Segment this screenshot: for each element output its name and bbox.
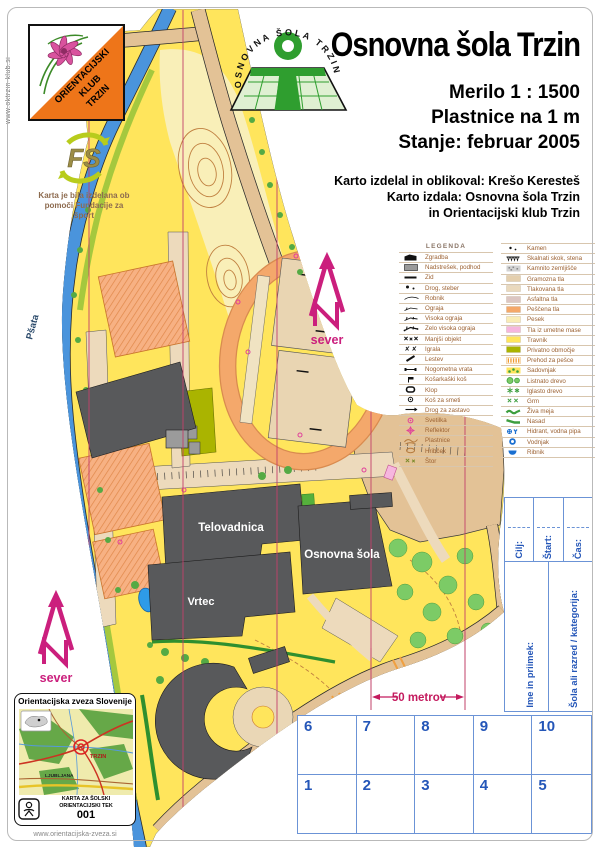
shed-2 xyxy=(189,442,200,454)
club-website: www.oktrzin-klub.si xyxy=(5,24,12,124)
legend-label: Pesek xyxy=(527,315,544,324)
punch-cell: 8 xyxy=(415,716,474,775)
issuer-minimap: TRZIN LJUBLJANA xyxy=(19,709,133,795)
map-meta: Merilo 1 : 1500 Plastnice na 1 m Stanje:… xyxy=(398,80,580,155)
legend-label: Kamnito zemljišče xyxy=(527,264,577,273)
legend-label: Prehod za pešce xyxy=(527,356,573,365)
punch-cell: 5 xyxy=(532,775,591,834)
punch-cell-number: 3 xyxy=(421,777,429,794)
contour-text: Plastnice na 1 m xyxy=(398,105,580,130)
legend-label: Igrala xyxy=(425,345,440,354)
credit-line-1: Karto izdelal in oblikoval: Krešo Kerest… xyxy=(334,173,580,189)
category-label: Šola ali razred / kategorija: xyxy=(569,590,579,708)
legend-label: Nasad xyxy=(527,417,545,426)
legend-label: Gramozna tla xyxy=(527,275,564,284)
legend-label: Hribček xyxy=(425,447,446,456)
punch-cell: 6 xyxy=(298,716,357,775)
legend-label: Svetilka xyxy=(425,416,447,425)
sand-field-north xyxy=(98,261,189,357)
legend-label: Nadstrešek, podhod xyxy=(425,263,480,272)
label-school: Osnovna šola xyxy=(304,549,380,561)
legend-row: Štor xyxy=(399,457,493,467)
legend-label: Klop xyxy=(425,386,437,395)
category-field: Šola ali razred / kategorija: xyxy=(549,562,592,711)
stump-icon xyxy=(399,452,425,470)
name-label: Ime in priimek: xyxy=(525,642,535,708)
federation-website: www.orientacijska-zveza.si xyxy=(14,831,136,838)
legend-label: Drog, steber xyxy=(425,284,459,293)
legend-label: Vodnjak xyxy=(527,438,549,447)
punch-cell: 3 xyxy=(415,775,474,834)
north-arrow-1: sever xyxy=(311,252,344,347)
legend-label: Manjši objekt xyxy=(425,335,461,344)
legend-label: Iglasto drevo xyxy=(527,387,562,396)
punch-cell-number: 7 xyxy=(363,718,371,735)
sponsor-caption-2: pomoči Fundacije za šport xyxy=(36,201,132,221)
start-label: Štart: xyxy=(543,535,553,559)
legend-row: Ribnik xyxy=(501,448,595,458)
legend-label: Kamen xyxy=(527,244,547,253)
legend: LEGENDA ZgradbaNadstrešek, podhodZidDrog… xyxy=(399,242,595,467)
legend-label: Štor xyxy=(425,457,436,466)
punch-cell: 1 xyxy=(298,775,357,834)
issuer-card-title: Orientacijska zveza Slovenije xyxy=(15,694,135,706)
punch-cell: 10 xyxy=(532,716,591,775)
legend-label: Ribnik xyxy=(527,448,544,457)
punch-cell-number: 2 xyxy=(363,777,371,794)
legend-label: Privatno območje xyxy=(527,346,575,355)
sponsor-block: FS Karta je bila izdelana ob pomoči Fund… xyxy=(36,131,132,221)
scale-text: Merilo 1 : 1500 xyxy=(398,80,580,105)
credits: Karto izdelal in oblikoval: Krešo Kerest… xyxy=(334,173,580,221)
legend-label: Peščena tla xyxy=(527,305,559,314)
legend-label: Reflektor xyxy=(425,426,450,435)
legend-column-right: KamenSkalnati skok, stenaKamnito zemljiš… xyxy=(501,243,595,467)
school-run-icon xyxy=(18,798,40,820)
start-cell: Štart: xyxy=(534,498,563,561)
punch-cell: 4 xyxy=(474,775,533,834)
fs-logo: FS xyxy=(52,131,116,185)
punch-cell: 2 xyxy=(357,775,416,834)
punch-cell-number: 6 xyxy=(304,718,312,735)
legend-label: Ograja xyxy=(425,304,444,313)
punch-cell-number: 4 xyxy=(480,777,488,794)
legend-label: Tla iz umetne mase xyxy=(527,326,581,335)
plaza-center-grass xyxy=(252,706,274,728)
pond-icon xyxy=(501,443,527,461)
sponsor-caption-1: Karta je bila izdelana ob xyxy=(36,191,132,201)
map-sheet: Telovadnica Osnovna šola Vrtec Pšata sev… xyxy=(0,0,600,848)
minimap-city: LJUBLJANA xyxy=(45,773,74,779)
status-text: Stanje: februar 2005 xyxy=(398,130,580,155)
name-field: Ime in priimek: xyxy=(505,562,549,711)
punch-grid: 67891012345 xyxy=(297,715,592,834)
punch-cell-number: 8 xyxy=(421,718,429,735)
finish-cell: Cilj: xyxy=(505,498,534,561)
page-title: Osnovna šola Trzin xyxy=(331,26,580,65)
legend-label: Asfaltna tla xyxy=(527,295,558,304)
club-logo: ORIENTACIJSKI KLUB TRZIN xyxy=(28,24,125,121)
finish-label: Cilj: xyxy=(514,541,524,559)
legend-label: Drog za zastavo xyxy=(425,406,470,415)
punch-cell-number: 1 xyxy=(304,777,312,794)
building-annex xyxy=(166,430,188,448)
legend-label: Živa meja xyxy=(527,407,554,416)
legend-label: Visoka ograja xyxy=(425,314,462,323)
north-label: sever xyxy=(311,333,344,347)
label-river: Pšata xyxy=(24,313,41,341)
north-label: sever xyxy=(40,671,73,685)
time-cell: Čas: xyxy=(564,498,592,561)
legend-label: Nogometna vrata xyxy=(425,365,472,374)
legend-column-left: ZgradbaNadstrešek, podhodZidDrog, steber… xyxy=(399,253,493,467)
legend-label: Lestev xyxy=(425,355,443,364)
legend-label: Robnik xyxy=(425,294,444,303)
legend-label: Tlakovana tla xyxy=(527,285,564,294)
legend-label: Zid xyxy=(425,273,434,282)
card-number: 001 xyxy=(40,809,132,821)
label-kindergarten: Vrtec xyxy=(188,596,215,608)
legend-label: Grm xyxy=(527,397,539,406)
legend-label: Plastnice xyxy=(425,436,450,445)
punch-cell: 9 xyxy=(474,716,533,775)
punch-cell-number: 5 xyxy=(538,777,546,794)
control-card: Cilj: Štart: Čas: Ime in priimek: Šola a… xyxy=(504,497,593,712)
legend-label: Zelo visoka ograja xyxy=(425,324,475,333)
legend-label: Zgradba xyxy=(425,253,448,262)
legend-label: Hidrant, vodna pipa xyxy=(527,427,581,436)
credit-line-2: Karto izdala: Osnovna šola Trzin xyxy=(334,189,580,205)
legend-label: Travnik xyxy=(527,336,547,345)
fs-logo-text: FS xyxy=(67,143,101,173)
legend-label: Listnato drevo xyxy=(527,377,566,386)
legend-label: Sadovnjak xyxy=(527,366,556,375)
label-gym: Telovadnica xyxy=(198,522,264,534)
punch-cell-number: 10 xyxy=(538,718,555,735)
punch-cell-number: 9 xyxy=(480,718,488,735)
north-arrow-2: sever xyxy=(40,590,73,685)
time-label: Čas: xyxy=(573,539,583,559)
punch-cell: 7 xyxy=(357,716,416,775)
issuer-card: Orientacijska zveza Slovenije TRZIN LJUB… xyxy=(14,693,136,826)
legend-label: Košarkaški koš xyxy=(425,375,467,384)
legend-label: Skalnati skok, stena xyxy=(527,254,582,263)
scale-bar-label: 50 metrov xyxy=(392,692,447,704)
legend-label: Koš za smeti xyxy=(425,396,460,405)
credit-line-3: in Orientacijski klub Trzin xyxy=(334,205,580,221)
minimap-place: TRZIN xyxy=(90,754,106,760)
